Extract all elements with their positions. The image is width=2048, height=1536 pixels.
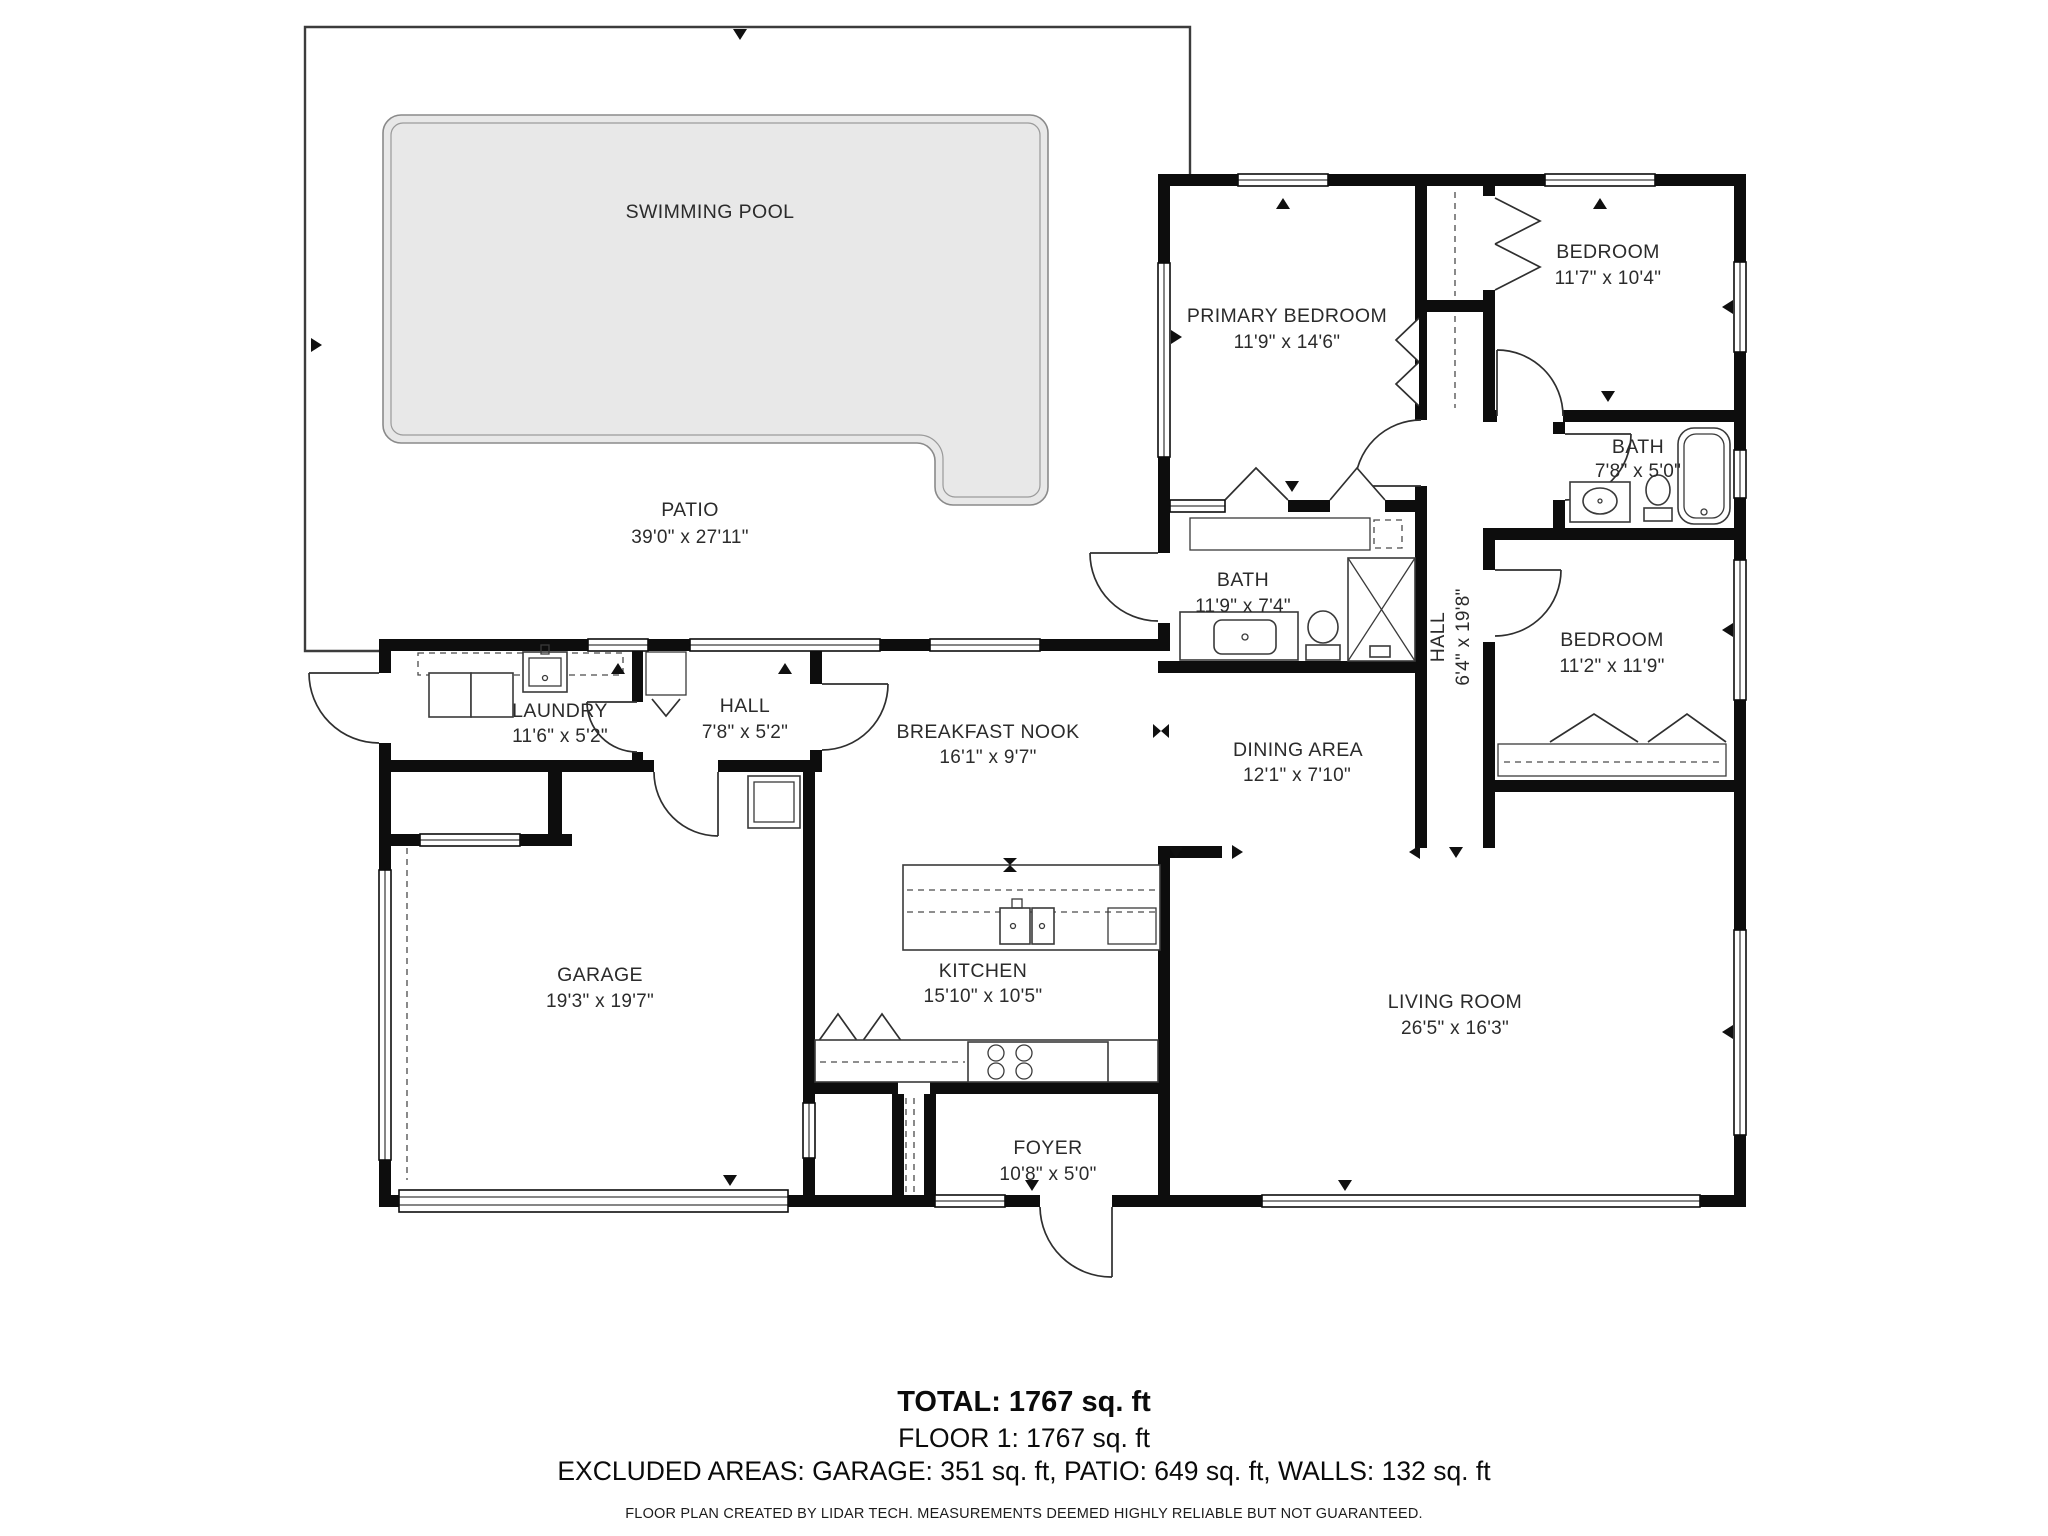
washer [429, 673, 471, 717]
door-hall-breakfast [822, 684, 888, 750]
dim-hall-small: 7'8" x 5'2" [702, 722, 788, 743]
label-laundry: LAUNDRY [512, 700, 608, 722]
window-bedroom2-east [1734, 262, 1746, 352]
label-breakfast-nook: BREAKFAST NOOK [897, 721, 1080, 743]
label-primary-bedroom: PRIMARY BEDROOM [1187, 305, 1387, 327]
window-storage [420, 834, 520, 846]
disclaimer-text: FLOOR PLAN CREATED BY LIDAR TECH. MEASUR… [0, 1506, 2048, 1522]
label-garage: GARAGE [557, 964, 643, 986]
door-laundry-exterior [309, 673, 379, 743]
label-bath-right: BATH [1612, 436, 1664, 458]
swimming-pool-shape [383, 115, 1048, 505]
window-bedroom2-top [1545, 174, 1655, 186]
dim-breakfast-nook: 16'1" x 9'7" [939, 747, 1036, 768]
dim-bath-right: 7'8" x 5'0" [1595, 461, 1681, 482]
window-bath2-east [1734, 450, 1746, 498]
label-swimming-pool: SWIMMING POOL [626, 201, 795, 223]
label-bath-middle: BATH [1217, 569, 1269, 591]
window-garage-east [803, 1103, 815, 1158]
dim-primary-bedroom: 11'9" x 14'6" [1234, 332, 1341, 353]
stove [968, 1042, 1108, 1082]
dim-hall-main: 6'4" x 19'8" [1453, 588, 1474, 685]
window-nook-top-2 [930, 639, 1040, 651]
label-dining-area: DINING AREA [1233, 739, 1363, 761]
door-bedroom3 [1495, 570, 1561, 636]
floor-plan-canvas: SWIMMING POOL PATIO 39'0" x 27'11" PRIMA… [0, 0, 2048, 1536]
label-patio: PATIO [661, 499, 719, 521]
window-primary-top [1238, 174, 1328, 186]
label-bedroom-lower: BEDROOM [1560, 629, 1664, 651]
shower [1348, 558, 1415, 661]
label-kitchen: KITCHEN [939, 960, 1027, 982]
door-bedroom2 [1497, 350, 1563, 416]
dim-garage: 19'3" x 19'7" [546, 991, 654, 1012]
dim-laundry: 11'6" x 5'2" [512, 726, 608, 747]
bathtub [1678, 428, 1730, 524]
label-living-room: LIVING ROOM [1388, 991, 1522, 1013]
dim-bath-middle: 11'9" x 7'4" [1195, 596, 1291, 617]
window-foyer-bottom [935, 1195, 1005, 1207]
label-bedroom-top: BEDROOM [1556, 241, 1660, 263]
floor-plan: SWIMMING POOL PATIO 39'0" x 27'11" PRIMA… [0, 0, 2048, 1536]
dim-kitchen: 15'10" x 10'5" [924, 986, 1043, 1007]
window-living-bottom [1262, 1195, 1700, 1207]
window-nook-top [690, 639, 880, 651]
kitchen-island [903, 865, 1160, 950]
label-foyer: FOYER [1013, 1137, 1082, 1159]
kitchen-counter [815, 1040, 1158, 1082]
total-area-text: TOTAL: 1767 sq. ft [0, 1386, 2048, 1419]
dim-bedroom-top: 11'7" x 10'4" [1555, 268, 1662, 289]
water-heater [748, 776, 800, 828]
floor-area-text: FLOOR 1: 1767 sq. ft [0, 1423, 2048, 1454]
window-laundry-top [588, 639, 648, 651]
garage-door [399, 1190, 788, 1212]
dim-dining-area: 12'1" x 7'10" [1243, 765, 1351, 786]
dim-bedroom-lower: 11'2" x 11'9" [1559, 656, 1664, 677]
door-front-entry [1040, 1207, 1112, 1277]
label-hall-small: HALL [720, 695, 770, 717]
dim-foyer: 10'8" x 5'0" [999, 1164, 1096, 1185]
window-primary-closet [1170, 500, 1225, 512]
door-bath1-patio [1090, 553, 1158, 621]
dim-patio: 39'0" x 27'11" [631, 527, 749, 548]
window-living-east [1734, 930, 1746, 1135]
dim-living-room: 26'5" x 16'3" [1401, 1018, 1509, 1039]
door-garage-hall [654, 772, 718, 836]
window-garage-west [379, 870, 391, 1160]
window-primary-west [1158, 263, 1170, 457]
dryer [471, 673, 513, 717]
label-hall-main: HALL [1427, 612, 1449, 662]
window-bedroom3-east [1734, 560, 1746, 700]
excluded-areas-text: EXCLUDED AREAS: GARAGE: 351 sq. ft, PATI… [0, 1456, 2048, 1487]
